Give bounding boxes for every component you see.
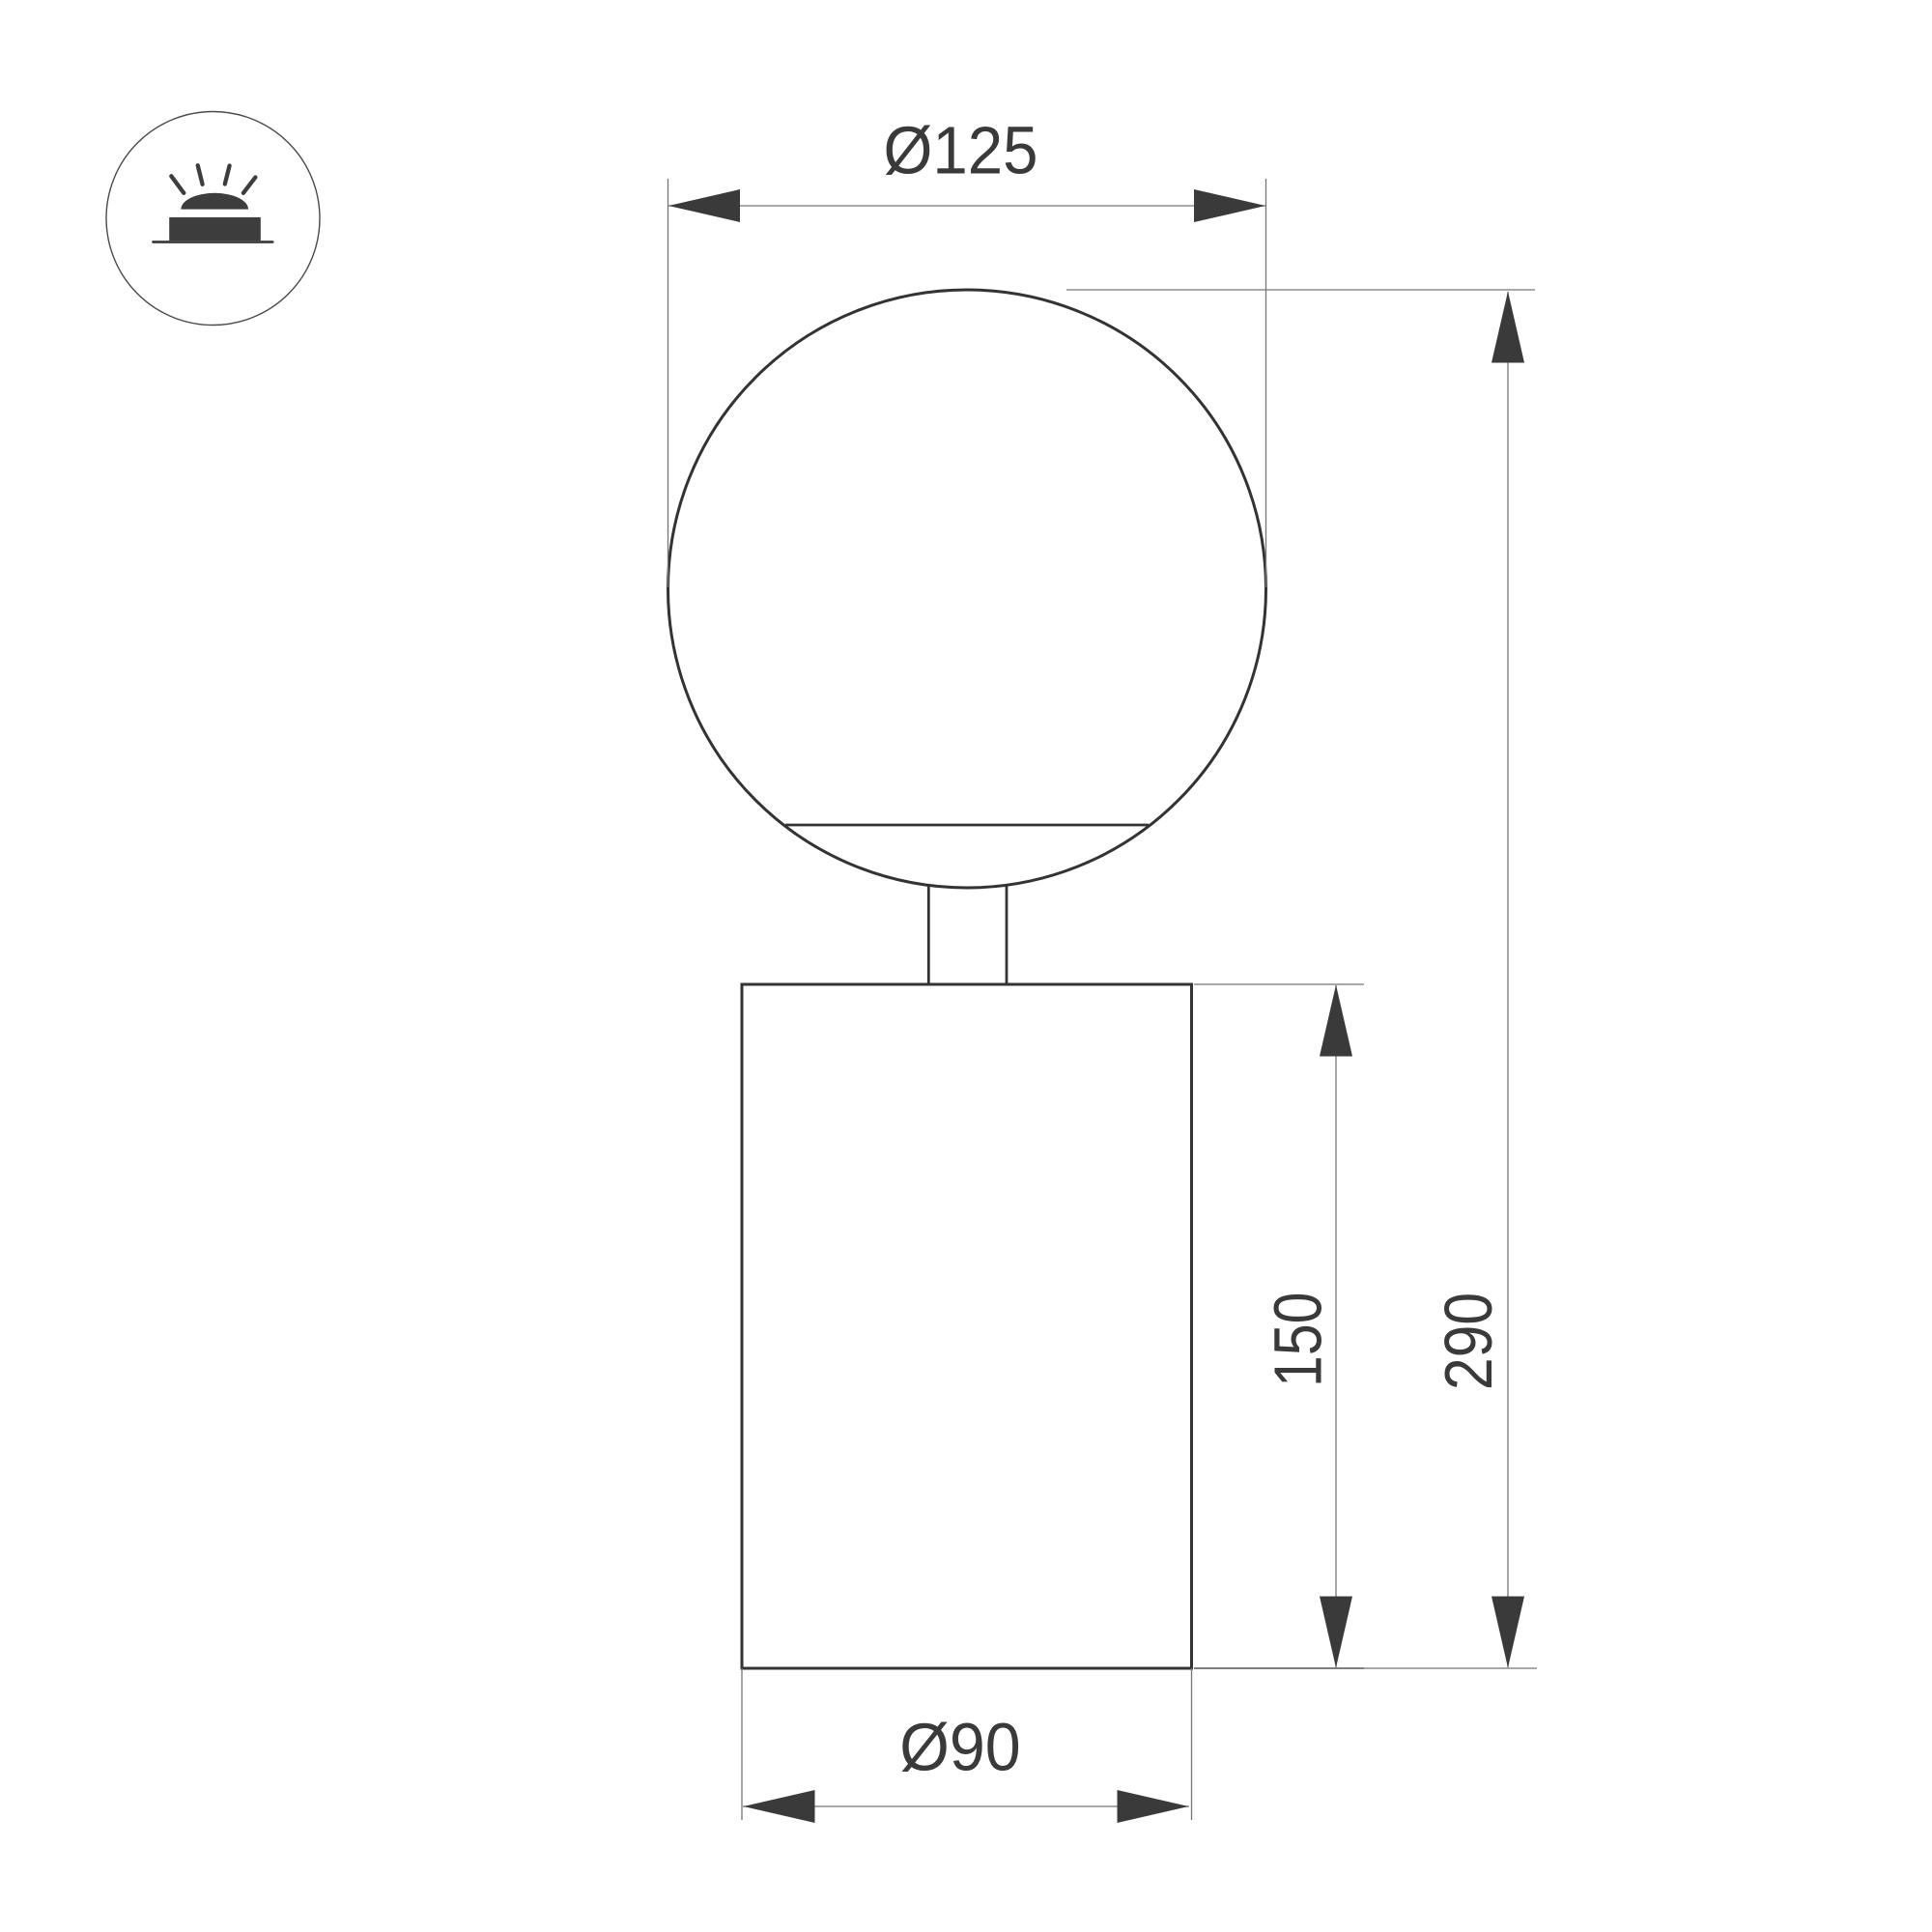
svg-text:290: 290 [1431,1293,1506,1390]
svg-text:Ø125: Ø125 [883,114,1037,188]
svg-text:150: 150 [1260,1293,1336,1387]
svg-text:Ø90: Ø90 [899,1710,1020,1785]
